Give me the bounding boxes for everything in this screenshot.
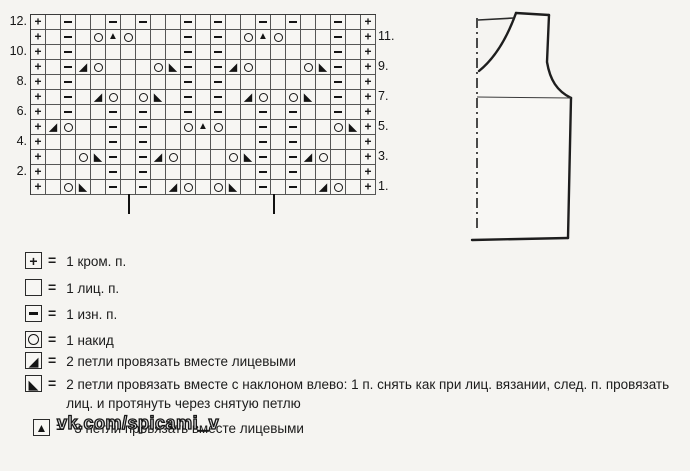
equals-sign: = — [48, 331, 56, 348]
chart-cell — [106, 45, 121, 60]
chart-cell — [46, 165, 61, 180]
chart-cell — [91, 135, 106, 150]
chart-cell — [196, 135, 211, 150]
repeat-marker-tick — [273, 194, 275, 214]
chart-cell — [226, 135, 241, 150]
chart-cell — [91, 165, 106, 180]
chart-cell — [331, 105, 346, 120]
chart-cell — [256, 75, 271, 90]
chart-cell — [316, 45, 331, 60]
chart-cell — [136, 165, 151, 180]
edge-stitch-symbol: + — [364, 151, 371, 163]
chart-cell — [181, 75, 196, 90]
chart-cell — [256, 45, 271, 60]
yarn-over-circle-symbol — [94, 33, 103, 42]
purl-dash-symbol — [64, 66, 72, 68]
yarn-over-circle-symbol — [214, 183, 223, 192]
chart-cell — [106, 120, 121, 135]
chart-cell — [166, 30, 181, 45]
chart-cell: + — [361, 120, 376, 135]
chart-cell — [241, 120, 256, 135]
chart-cell — [121, 105, 136, 120]
chart-cell: ◢ — [151, 150, 166, 165]
chart-cell — [331, 165, 346, 180]
yarn-over-circle-symbol — [244, 63, 253, 72]
chart-cell — [256, 135, 271, 150]
chart-cell — [331, 60, 346, 75]
chart-cell — [211, 75, 226, 90]
purl-dash-symbol — [139, 186, 147, 188]
chart-cell: + — [31, 165, 46, 180]
k2tog-triangle-symbol: ◢ — [304, 152, 312, 163]
chart-cell: + — [31, 105, 46, 120]
purl-dash-symbol — [64, 36, 72, 38]
row-number-label: 6. — [1, 104, 27, 119]
chart-cell — [271, 45, 286, 60]
purl-dash-symbol — [289, 186, 297, 188]
purl-dash-symbol — [214, 81, 222, 83]
purl-dash-symbol — [259, 111, 267, 113]
ssk-triangle-symbol: ◣ — [319, 62, 327, 73]
chart-cell — [226, 120, 241, 135]
chart-cell — [316, 120, 331, 135]
k2tog-triangle-symbol: ◢ — [79, 62, 87, 73]
chart-cell — [166, 75, 181, 90]
legend-item-text: 1 изн. п. — [66, 305, 117, 324]
ssk-triangle-symbol: ◣ — [304, 92, 312, 103]
chart-cell — [286, 165, 301, 180]
chart-cell — [286, 105, 301, 120]
chart-cell — [226, 30, 241, 45]
chart-cell — [136, 105, 151, 120]
row-number-label: 11. — [378, 29, 394, 44]
chart-cell — [346, 165, 361, 180]
chart-cell — [256, 90, 271, 105]
purl-dash-symbol — [184, 36, 192, 38]
chart-cell — [166, 150, 181, 165]
ssk-triangle-symbol: ◣ — [229, 182, 237, 193]
chart-cell — [286, 45, 301, 60]
purl-dash-symbol — [214, 51, 222, 53]
chart-cell — [241, 45, 256, 60]
chart-cell — [211, 180, 226, 195]
chart-cell — [151, 120, 166, 135]
k2tog-triangle-symbol: ◢ — [229, 62, 237, 73]
purl-dash-symbol — [184, 81, 192, 83]
edge-stitch-symbol: + — [34, 136, 41, 148]
chart-cell — [91, 75, 106, 90]
triple-decrease-triangle-symbol: ▲ — [258, 32, 268, 42]
chart-cell — [211, 105, 226, 120]
chart-cell — [286, 120, 301, 135]
chart-cell: + — [361, 45, 376, 60]
yarn-over-circle-symbol — [124, 33, 133, 42]
chart-cell — [106, 60, 121, 75]
chart-cell — [121, 120, 136, 135]
chart-cell — [316, 75, 331, 90]
legend-item-text: 1 лиц. п. — [66, 279, 119, 298]
chart-cell — [316, 15, 331, 30]
chart-cell — [196, 30, 211, 45]
equals-sign: = — [48, 375, 56, 392]
chart-cell: + — [31, 120, 46, 135]
chart-cell: + — [361, 75, 376, 90]
chart-cell — [271, 120, 286, 135]
chart-cell — [211, 15, 226, 30]
chart-cell — [346, 105, 361, 120]
row-number-label: 2. — [1, 164, 27, 179]
purl-dash-symbol — [289, 21, 297, 23]
chart-cell — [211, 150, 226, 165]
edge-stitch-symbol: + — [364, 16, 371, 28]
triple-decrease-triangle-symbol: ▲ — [36, 422, 48, 434]
chart-cell — [241, 135, 256, 150]
chart-cell — [166, 90, 181, 105]
chart-cell — [61, 105, 76, 120]
purl-dash-symbol — [289, 171, 297, 173]
purl-dash-symbol — [109, 126, 117, 128]
chart-cell: ◣ — [346, 120, 361, 135]
purl-dash-symbol — [334, 66, 342, 68]
chart-cell — [46, 75, 61, 90]
purl-dash-symbol — [214, 36, 222, 38]
yarn-over-circle-symbol — [229, 153, 238, 162]
chart-cell — [241, 165, 256, 180]
k2tog-triangle-symbol: ◢ — [49, 122, 57, 133]
yarn-over-circle-symbol — [169, 153, 178, 162]
chart-cell — [76, 165, 91, 180]
yarn-over-circle-symbol — [289, 93, 298, 102]
ssk-triangle-symbol: ◣ — [244, 152, 252, 163]
row-number-label: 12. — [1, 14, 27, 29]
chart-cell — [346, 150, 361, 165]
purl-dash-symbol — [184, 21, 192, 23]
chart-cell — [211, 90, 226, 105]
chart-cell — [301, 165, 316, 180]
chart-cell — [121, 135, 136, 150]
purl-dash-symbol — [259, 156, 267, 158]
edge-stitch-symbol: + — [364, 106, 371, 118]
chart-cell — [106, 150, 121, 165]
chart-cell — [241, 105, 256, 120]
chart-cell — [181, 15, 196, 30]
equals-sign: = — [48, 305, 56, 322]
chart-cell — [106, 15, 121, 30]
chart-cell — [196, 180, 211, 195]
scanned-knitting-pattern-page: +++▲▲++++◢◣◢◣++++◢◣◢◣++++◢▲◣++++◣◢◣◢++++… — [0, 0, 690, 471]
schematic-back-neck-line — [478, 18, 514, 20]
edge-stitch-symbol: + — [34, 76, 41, 88]
k2tog-triangle-symbol: ◢ — [29, 355, 39, 368]
chart-cell — [106, 105, 121, 120]
chart-cell — [271, 15, 286, 30]
chart-cell — [61, 60, 76, 75]
chart-cell — [316, 30, 331, 45]
chart-cell — [331, 135, 346, 150]
chart-cell — [286, 180, 301, 195]
chart-cell: + — [31, 90, 46, 105]
chart-cell — [316, 165, 331, 180]
chart-cell — [271, 135, 286, 150]
k2tog-triangle-symbol: ◢ — [94, 92, 102, 103]
yarn-over-circle-symbol — [64, 183, 73, 192]
chart-cell — [271, 180, 286, 195]
legend-symbol-box — [25, 279, 42, 296]
chart-cell — [271, 165, 286, 180]
purl-dash-symbol — [109, 156, 117, 158]
k2tog-triangle-symbol: ◢ — [169, 182, 177, 193]
chart-cell — [301, 30, 316, 45]
triple-decrease-triangle-symbol: ▲ — [198, 122, 208, 132]
k2tog-triangle-symbol: ◢ — [244, 92, 252, 103]
yarn-over-circle-symbol — [319, 153, 328, 162]
chart-cell — [331, 150, 346, 165]
chart-cell: ▲ — [196, 120, 211, 135]
chart-cell — [301, 135, 316, 150]
chart-cell — [121, 165, 136, 180]
purl-dash-symbol — [334, 21, 342, 23]
chart-cell — [181, 180, 196, 195]
chart-cell — [121, 90, 136, 105]
chart-cell — [136, 45, 151, 60]
schematic-fill — [472, 13, 571, 240]
chart-cell — [151, 45, 166, 60]
edge-stitch-symbol: + — [364, 46, 371, 58]
chart-cell — [61, 75, 76, 90]
k2tog-triangle-symbol: ◢ — [319, 182, 327, 193]
chart-cell — [61, 90, 76, 105]
chart-cell: ◢ — [76, 60, 91, 75]
chart-cell — [196, 45, 211, 60]
chart-cell: + — [31, 15, 46, 30]
chart-cell — [121, 75, 136, 90]
chart-cell: + — [361, 90, 376, 105]
chart-cell — [106, 180, 121, 195]
legend-item-text: 1 накид — [66, 331, 114, 350]
chart-cell: + — [31, 150, 46, 165]
yarn-over-circle-symbol — [259, 93, 268, 102]
legend-symbol-box: ▲ — [33, 419, 50, 436]
legend-symbol-box: + — [25, 252, 42, 269]
chart-cell: ◣ — [76, 180, 91, 195]
purl-dash-symbol — [184, 96, 192, 98]
chart-cell — [136, 120, 151, 135]
chart-cell: ▲ — [106, 30, 121, 45]
chart-cell — [61, 180, 76, 195]
chart-cell — [61, 15, 76, 30]
chart-cell — [301, 75, 316, 90]
chart-cell — [76, 90, 91, 105]
edge-stitch-symbol: + — [34, 151, 41, 163]
chart-cell — [166, 165, 181, 180]
chart-cell: ◢ — [316, 180, 331, 195]
chart-cell — [121, 15, 136, 30]
chart-cell — [331, 45, 346, 60]
chart-cell — [226, 45, 241, 60]
yarn-over-circle-symbol — [334, 123, 343, 132]
chart-cell — [151, 60, 166, 75]
chart-cell: ◣ — [301, 90, 316, 105]
purl-dash-symbol — [214, 111, 222, 113]
yarn-over-circle-symbol — [94, 63, 103, 72]
watermark-overlay: vk.com/spicami_v — [57, 413, 219, 434]
chart-cell — [91, 30, 106, 45]
chart-cell — [166, 15, 181, 30]
chart-cell — [166, 105, 181, 120]
purl-dash-symbol — [259, 171, 267, 173]
chart-cell — [46, 150, 61, 165]
chart-cell — [316, 135, 331, 150]
purl-dash-symbol — [334, 96, 342, 98]
chart-cell — [121, 60, 136, 75]
purl-dash-symbol — [139, 171, 147, 173]
chart-cell — [256, 15, 271, 30]
yarn-over-circle-symbol — [214, 123, 223, 132]
legend-symbol-box — [25, 305, 42, 322]
equals-sign: = — [48, 252, 56, 269]
purl-dash-symbol — [289, 111, 297, 113]
chart-cell — [226, 15, 241, 30]
chart-cell — [301, 15, 316, 30]
yarn-over-circle-symbol — [244, 33, 253, 42]
stitch-chart-grid: +++▲▲++++◢◣◢◣++++◢◣◢◣++++◢▲◣++++◣◢◣◢++++… — [30, 14, 376, 195]
chart-cell: + — [31, 75, 46, 90]
legend-symbol-box: ◣ — [25, 375, 42, 392]
chart-cell: + — [361, 180, 376, 195]
chart-cell — [241, 30, 256, 45]
chart-cell: ◢ — [301, 150, 316, 165]
chart-cell: ◣ — [91, 150, 106, 165]
purl-dash-symbol — [334, 111, 342, 113]
chart-cell: ◢ — [91, 90, 106, 105]
chart-cell — [76, 45, 91, 60]
purl-dash-symbol — [214, 96, 222, 98]
chart-cell — [271, 30, 286, 45]
chart-cell — [181, 105, 196, 120]
purl-dash-symbol — [214, 66, 222, 68]
chart-cell — [211, 60, 226, 75]
chart-cell — [301, 120, 316, 135]
legend-symbol-box: ◢ — [25, 352, 42, 369]
chart-cell — [76, 150, 91, 165]
chart-cell: + — [361, 150, 376, 165]
chart-cell — [241, 180, 256, 195]
chart-cell — [196, 15, 211, 30]
purl-dash-symbol — [259, 21, 267, 23]
purl-dash-symbol — [139, 156, 147, 158]
yarn-over-circle-symbol — [274, 33, 283, 42]
chart-cell — [211, 135, 226, 150]
chart-cell: + — [31, 30, 46, 45]
purl-dash-symbol — [214, 21, 222, 23]
chart-cell — [346, 135, 361, 150]
chart-cell — [286, 15, 301, 30]
purl-dash-symbol — [109, 186, 117, 188]
chart-cell: ◣ — [241, 150, 256, 165]
chart-cell — [61, 45, 76, 60]
chart-cell — [241, 60, 256, 75]
ssk-triangle-symbol: ◣ — [154, 92, 162, 103]
chart-cell — [271, 90, 286, 105]
chart-cell — [256, 120, 271, 135]
purl-dash-symbol — [289, 141, 297, 143]
chart-cell — [331, 180, 346, 195]
chart-cell — [271, 60, 286, 75]
chart-cell: + — [361, 135, 376, 150]
chart-cell — [196, 165, 211, 180]
chart-cell — [181, 90, 196, 105]
yarn-over-circle-symbol — [139, 93, 148, 102]
chart-cell: + — [31, 135, 46, 150]
chart-cell — [166, 120, 181, 135]
legend-item: =1 лиц. п. — [25, 279, 119, 298]
chart-cell — [226, 90, 241, 105]
chart-cell — [196, 105, 211, 120]
legend-item: +=1 кром. п. — [25, 252, 126, 271]
chart-cell — [346, 60, 361, 75]
chart-cell — [166, 45, 181, 60]
edge-stitch-symbol: + — [34, 181, 41, 193]
chart-cell — [256, 165, 271, 180]
yarn-over-circle-symbol — [109, 93, 118, 102]
row-number-label: 9. — [378, 59, 388, 74]
chart-cell — [256, 105, 271, 120]
chart-cell — [151, 15, 166, 30]
legend-item: =1 накид — [25, 331, 114, 350]
legend-item-text: 1 кром. п. — [66, 252, 126, 271]
row-number-label: 4. — [1, 134, 27, 149]
ssk-triangle-symbol: ◣ — [94, 152, 102, 163]
chart-cell — [346, 15, 361, 30]
chart-cell — [226, 150, 241, 165]
edge-stitch-symbol: + — [34, 16, 41, 28]
chart-cell: + — [31, 60, 46, 75]
chart-cell — [76, 135, 91, 150]
chart-cell — [151, 135, 166, 150]
chart-cell — [181, 135, 196, 150]
chart-cell — [76, 120, 91, 135]
edge-stitch-symbol: + — [34, 106, 41, 118]
edge-stitch-symbol: + — [364, 61, 371, 73]
purl-dash-symbol — [184, 111, 192, 113]
purl-dash-symbol — [109, 171, 117, 173]
chart-cell — [61, 135, 76, 150]
yarn-over-circle-symbol — [154, 63, 163, 72]
purl-dash-symbol — [334, 36, 342, 38]
chart-cell — [151, 180, 166, 195]
chart-cell — [61, 120, 76, 135]
chart-cell — [226, 105, 241, 120]
chart-cell: + — [31, 45, 46, 60]
chart-cell — [211, 30, 226, 45]
chart-cell — [211, 165, 226, 180]
edge-stitch-symbol: + — [364, 136, 371, 148]
purl-dash-symbol — [64, 111, 72, 113]
chart-cell — [46, 30, 61, 45]
chart-cell — [256, 60, 271, 75]
k2tog-triangle-symbol: ◢ — [154, 152, 162, 163]
chart-cell — [181, 120, 196, 135]
purl-dash-symbol — [139, 21, 147, 23]
chart-cell — [76, 15, 91, 30]
purl-dash-symbol — [109, 111, 117, 113]
legend-symbol-box — [25, 331, 42, 348]
chart-cell — [106, 165, 121, 180]
ssk-triangle-symbol: ◣ — [79, 182, 87, 193]
chart-cell — [286, 90, 301, 105]
purl-dash-symbol — [64, 81, 72, 83]
chart-cell — [151, 75, 166, 90]
